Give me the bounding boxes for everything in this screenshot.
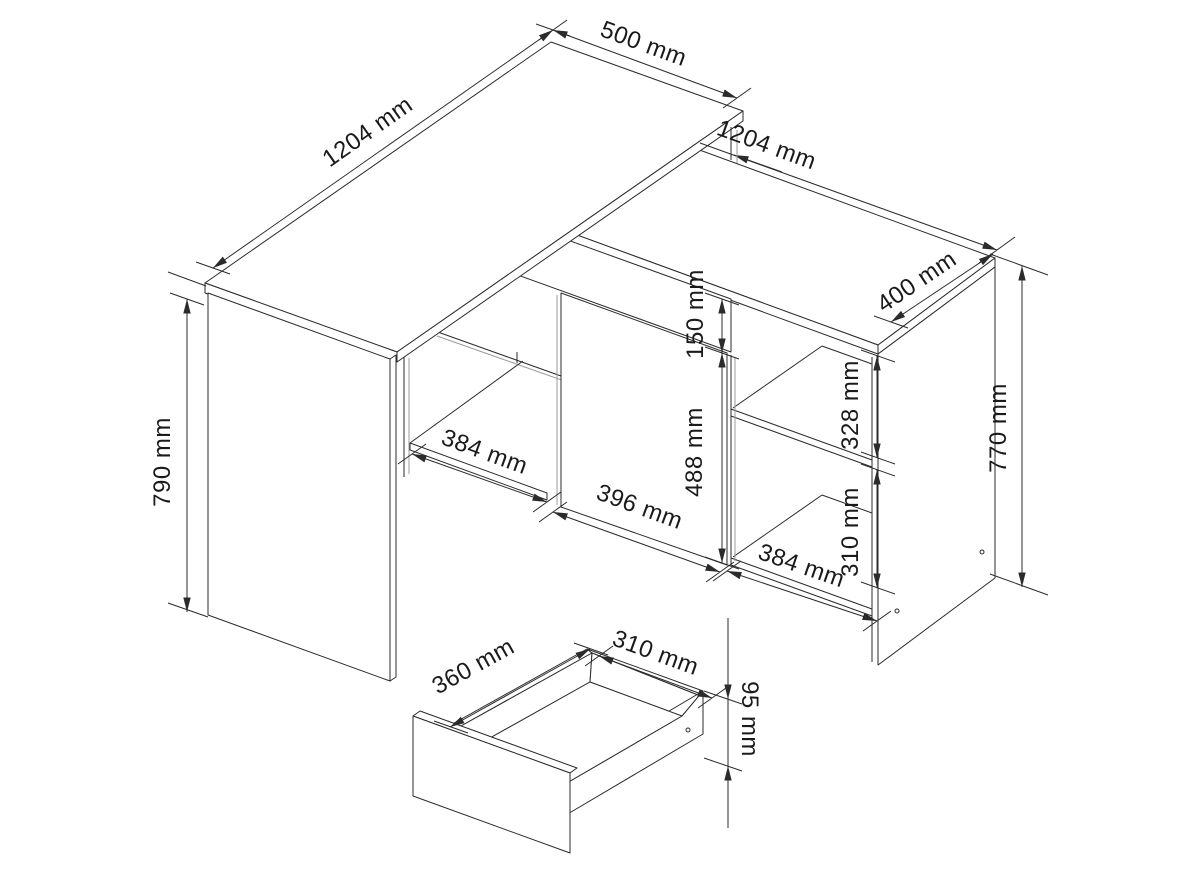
dimension-desk-height: 790 mm <box>149 272 208 617</box>
dimension-drawer-front-height: 95 mm <box>704 618 763 828</box>
desk-left-panel-front-edge <box>390 355 396 681</box>
drawing-svg: 1204 mm 500 mm 1204 mm 400 mm 770 mm <box>0 0 1200 887</box>
dim-right-upper-compartment-height-label: 328 mm <box>837 360 864 450</box>
desk-left-panel <box>208 293 390 681</box>
dim-sideboard-height-label: 770 mm <box>985 383 1012 473</box>
dim-drawer-front-height-label: 95 mm <box>736 681 763 757</box>
technical-drawing-canvas: 1204 mm 500 mm 1204 mm 400 mm 770 mm <box>0 0 1200 887</box>
dim-top-drawer-front-height-label: 150 mm <box>682 269 709 359</box>
left-compartment-back-edge-2 <box>437 336 570 383</box>
dim-desk-height-label: 790 mm <box>149 417 176 507</box>
upper-shelf-diagonal <box>733 346 822 408</box>
dim-door-height-label: 488 mm <box>681 407 708 497</box>
dim-drawer-depth-label: 360 mm <box>428 633 520 700</box>
dim-right-lower-compartment-height-label: 310 mm <box>837 487 864 577</box>
